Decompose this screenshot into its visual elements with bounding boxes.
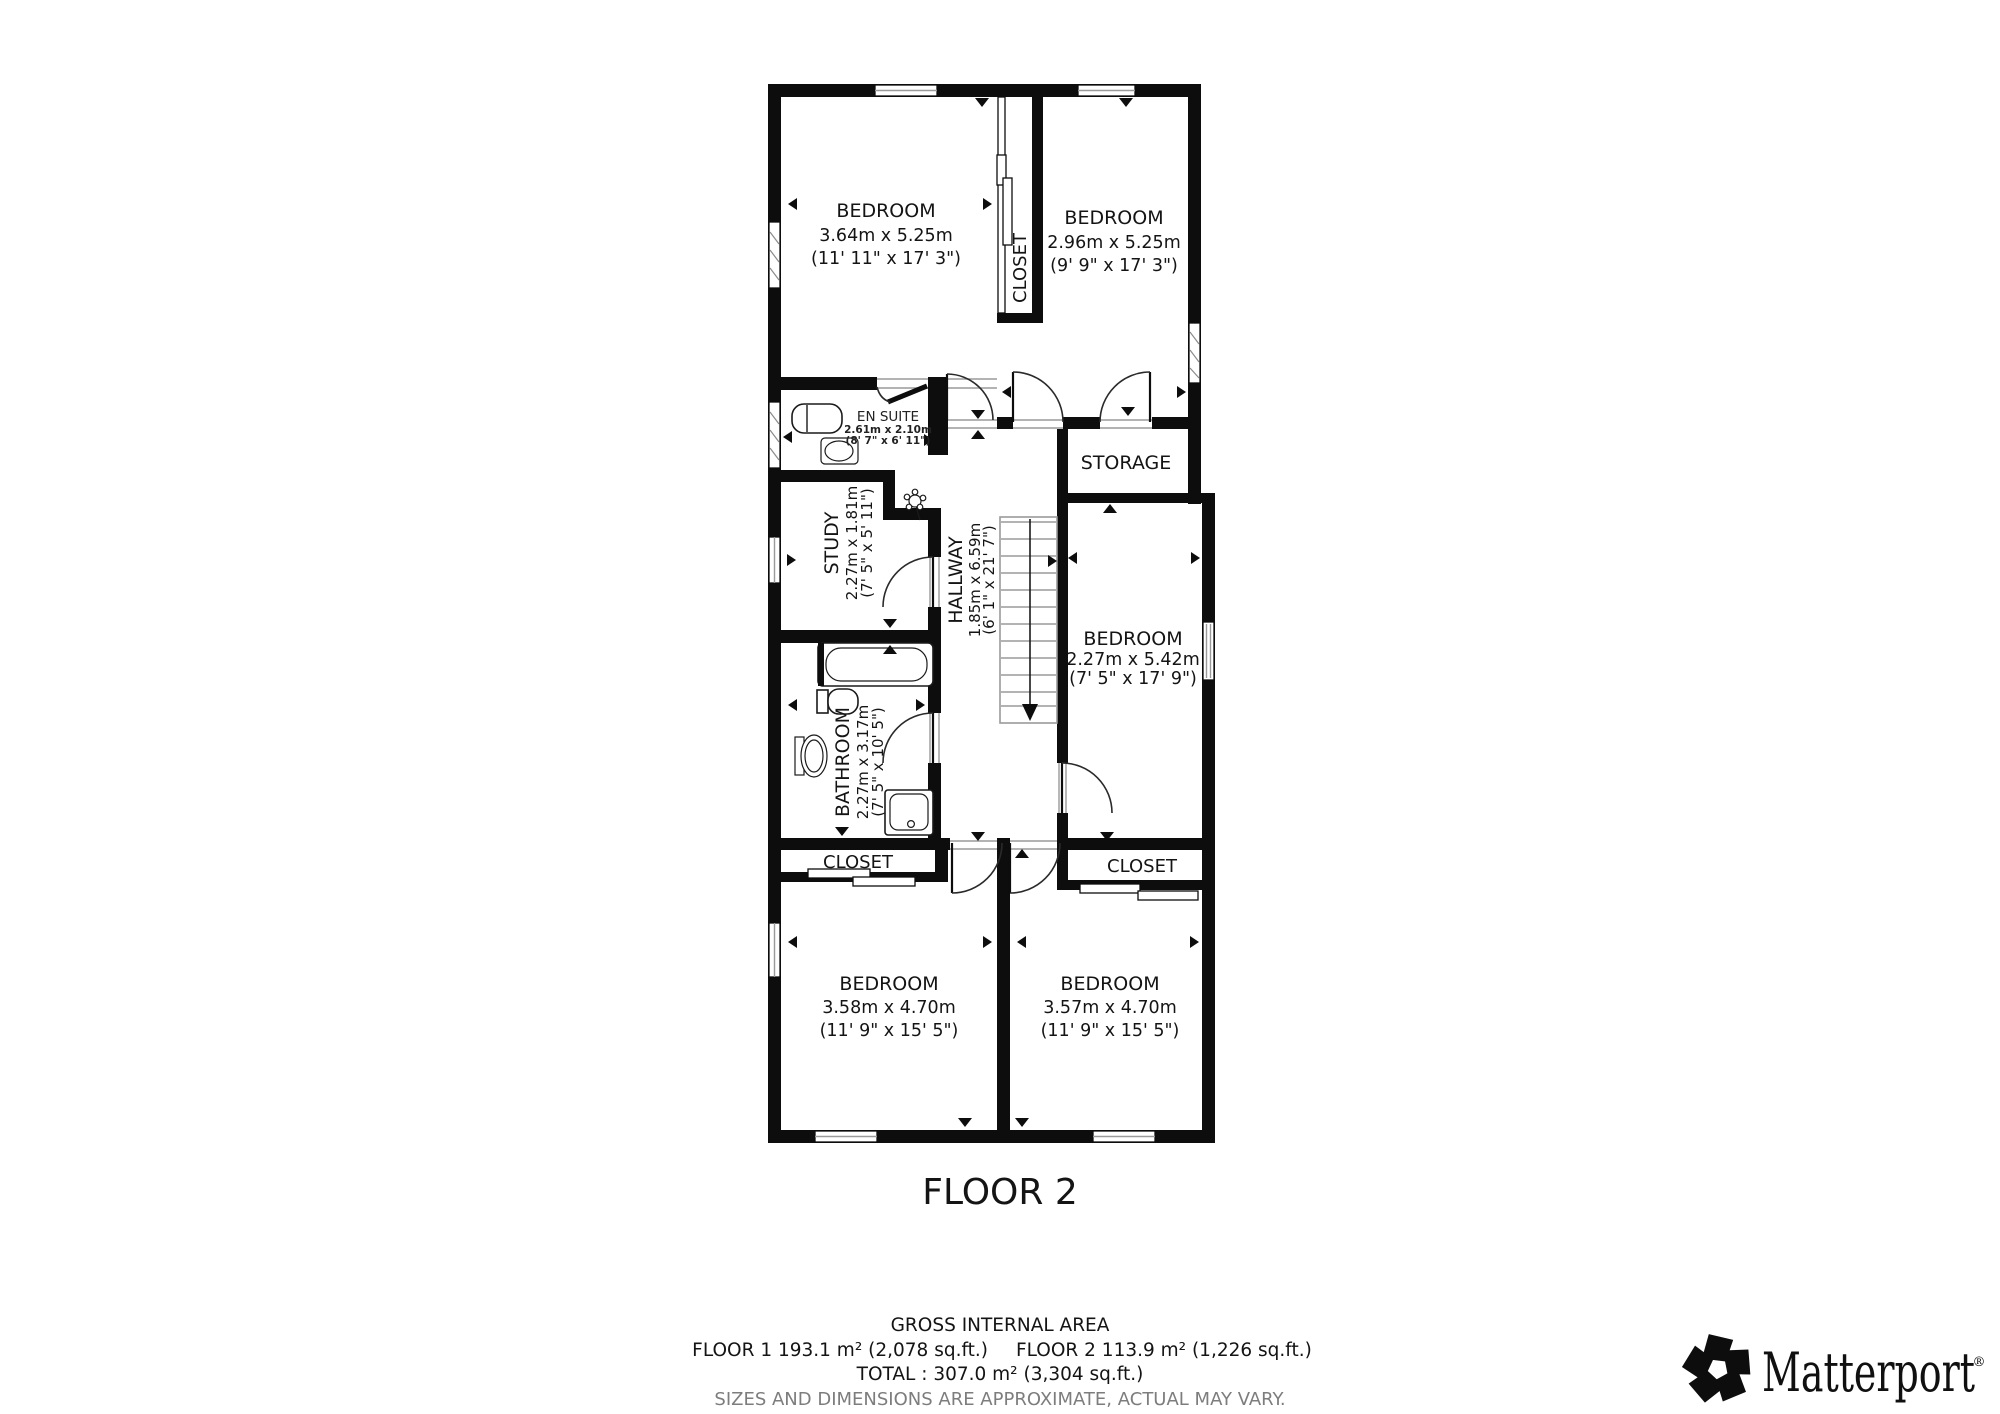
window-top-right: [1078, 85, 1135, 96]
room-label-hallway: HALLWAY 1.85m x 6.59m (6' 1" x 21' 7"): [945, 523, 998, 637]
room-label-study: STUDY 2.27m x 1.81m (7' 5" x 5' 11"): [821, 486, 876, 600]
door-bedroom-right: [1062, 763, 1112, 813]
bathtub-icon: [818, 643, 933, 686]
room-label-closet-bottom-right: CLOSET: [1107, 856, 1178, 877]
footer-disclaimer: SIZES AND DIMENSIONS ARE APPROXIMATE, AC…: [714, 1389, 1285, 1410]
svg-text:3.57m x 4.70m: 3.57m x 4.70m: [1043, 998, 1177, 1018]
svg-text:(11' 9" x 15' 5"): (11' 9" x 15' 5"): [1041, 1021, 1180, 1041]
room-label-bedroom-right: BEDROOM 2.27m x 5.42m (7' 5" x 17' 9"): [1066, 628, 1200, 689]
svg-text:(8' 7" x 6' 11"): (8' 7" x 6' 11"): [846, 435, 931, 447]
floor-plan-canvas: BEDROOM 3.64m x 5.25m (11' 11" x 17' 3")…: [0, 0, 2000, 1414]
svg-text:(7' 5" x 10' 5"): (7' 5" x 10' 5"): [869, 707, 887, 816]
window-left-1: [769, 222, 780, 288]
sink-icon-bathroom: [795, 735, 827, 777]
toilet-icon-ensuite: [792, 404, 842, 433]
window-left-bedroom: [769, 923, 780, 977]
door-storage: [1100, 372, 1150, 422]
svg-text:3.64m x 5.25m: 3.64m x 5.25m: [819, 226, 953, 246]
window-right-bedroom: [1203, 622, 1214, 680]
matterport-icon: [1674, 1327, 1765, 1414]
stairs: [1000, 517, 1057, 723]
floor-title: FLOOR 2: [922, 1172, 1078, 1213]
room-label-storage: STORAGE: [1081, 452, 1171, 474]
window-left-study: [769, 537, 780, 583]
svg-text:(11' 11" x 17' 3"): (11' 11" x 17' 3"): [811, 249, 961, 269]
registered-mark: ®: [1973, 1355, 1986, 1370]
svg-text:(7' 5" x 5' 11"): (7' 5" x 5' 11"): [858, 488, 876, 597]
svg-text:BEDROOM: BEDROOM: [836, 200, 935, 222]
svg-text:EN SUITE: EN SUITE: [857, 409, 919, 425]
matterport-logo: Matterport ®: [1674, 1327, 1986, 1414]
door-bedroom-bottom-left: [952, 843, 1002, 893]
svg-text:(9' 9" x 17' 3"): (9' 9" x 17' 3"): [1050, 256, 1178, 276]
svg-text:(7' 5" x 17' 9"): (7' 5" x 17' 9"): [1069, 669, 1197, 689]
footer-total-area: TOTAL : 307.0 m² (3,304 sq.ft.): [856, 1364, 1144, 1385]
room-label-bedroom-bottom-left: BEDROOM 3.58m x 4.70m (11' 9" x 15' 5"): [820, 973, 959, 1041]
svg-text:3.58m x 4.70m: 3.58m x 4.70m: [822, 998, 956, 1018]
door-bathroom: [883, 713, 933, 763]
svg-text:2.96m x 5.25m: 2.96m x 5.25m: [1047, 233, 1181, 253]
footer-floor2-area: FLOOR 2 113.9 m² (1,226 sq.ft.): [1016, 1340, 1312, 1361]
floor-plan: BEDROOM 3.64m x 5.25m (11' 11" x 17' 3")…: [768, 84, 1215, 1143]
door-bedroom-bottom-right: [1010, 843, 1060, 893]
door-bedroom-top-right: [1013, 372, 1063, 422]
window-left-ensuite: [769, 402, 780, 468]
brand-wordmark: Matterport: [1762, 1341, 1975, 1404]
room-label-bathroom: BATHROOM 2.27m x 3.17m (7' 5" x 10' 5"): [832, 705, 887, 819]
svg-text:2.27m x 5.42m: 2.27m x 5.42m: [1066, 650, 1200, 670]
room-label-closet-bottom-left: CLOSET: [823, 852, 894, 873]
shower-icon: [885, 790, 933, 835]
door-study: [883, 557, 933, 607]
footer: GROSS INTERNAL AREA FLOOR 1 193.1 m² (2,…: [692, 1315, 1312, 1410]
window-right-top: [1189, 323, 1200, 383]
room-label-bedroom-bottom-right: BEDROOM 3.57m x 4.70m (11' 9" x 15' 5"): [1041, 973, 1180, 1041]
door-bedroom-top-left: [947, 374, 993, 420]
footer-floor1-area: FLOOR 1 193.1 m² (2,078 sq.ft.): [692, 1340, 988, 1361]
window-top-left: [875, 85, 937, 96]
footer-gross-area-title: GROSS INTERNAL AREA: [891, 1315, 1110, 1336]
svg-text:BEDROOM: BEDROOM: [839, 973, 938, 995]
svg-text:(6' 1" x 21' 7"): (6' 1" x 21' 7"): [980, 525, 998, 634]
svg-text:BEDROOM: BEDROOM: [1083, 628, 1182, 650]
svg-text:BEDROOM: BEDROOM: [1060, 973, 1159, 995]
window-bottom-right: [1093, 1131, 1155, 1142]
svg-text:BEDROOM: BEDROOM: [1064, 207, 1163, 229]
floor-plan-page: BEDROOM 3.64m x 5.25m (11' 11" x 17' 3")…: [0, 0, 2000, 1414]
room-label-closet-top: CLOSET: [1010, 232, 1031, 303]
svg-text:STUDY: STUDY: [821, 511, 843, 574]
room-label-bedroom-top-right: BEDROOM 2.96m x 5.25m (9' 9" x 17' 3"): [1047, 207, 1181, 276]
svg-text:BATHROOM: BATHROOM: [832, 707, 854, 817]
svg-text:HALLWAY: HALLWAY: [945, 536, 967, 624]
window-bottom-left: [815, 1131, 877, 1142]
svg-text:(11' 9" x 15' 5"): (11' 9" x 15' 5"): [820, 1021, 959, 1041]
room-label-en-suite: EN SUITE 2.61m x 2.10m (8' 7" x 6' 11"): [844, 409, 932, 447]
room-label-bedroom-top-left: BEDROOM 3.64m x 5.25m (11' 11" x 17' 3"): [811, 200, 961, 269]
